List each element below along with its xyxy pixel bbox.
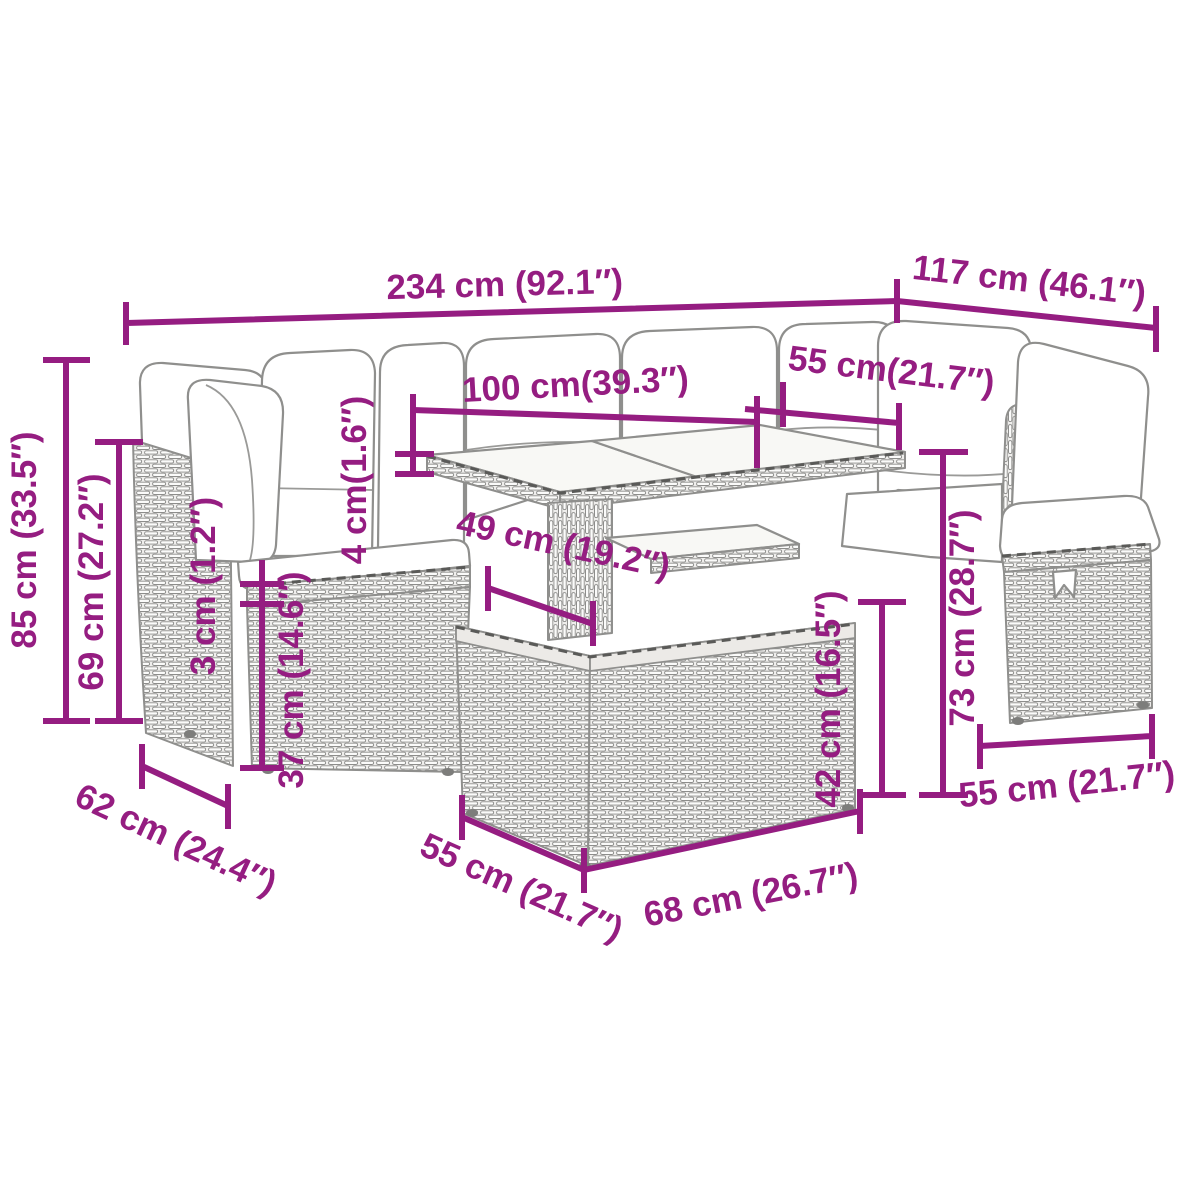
ottoman-foot: [1012, 717, 1024, 725]
sofa-foot: [442, 768, 454, 776]
dimension-label: 85 cm (33.5″): [5, 431, 44, 648]
dimension-line: [858, 602, 906, 795]
dimension-label: 42 cm (16.5″): [809, 590, 848, 807]
dimension-label: 68 cm (26.7″): [640, 855, 861, 935]
ottoman-foot: [1137, 701, 1149, 709]
dimension-label: 3 cm (1.2″): [184, 497, 223, 675]
dim-table-base-height-42: 42 cm (16.5″): [809, 590, 906, 807]
ottoman-front-face: [1004, 560, 1152, 723]
dimension-label: 234 cm (92.1″): [386, 262, 624, 307]
dimension-label: 62 cm (24.4″): [69, 776, 282, 903]
back-cushion-2: [378, 343, 464, 548]
dimension-label: 37 cm (14.6″): [272, 571, 311, 788]
dimension-label: 73 cm (28.7″): [943, 509, 982, 726]
dim-ottoman-width-55: 55 cm (21.7″): [957, 714, 1177, 815]
dimension-label: 55 cm (21.7″): [957, 754, 1177, 815]
sofa-foot: [184, 730, 196, 738]
diagram-canvas: 234 cm (92.1″) 117 cm (46.1″) 85 cm (33.…: [0, 0, 1200, 1200]
dimension-label: 69 cm (27.2″): [72, 473, 111, 690]
dimension-label: 4 cm(1.6″): [335, 396, 374, 565]
table-foot: [466, 809, 478, 817]
dim-total-width-234: 234 cm (92.1″): [126, 262, 897, 345]
dim-backrest-height-69: 69 cm (27.2″): [72, 442, 143, 721]
dimension-diagram: 234 cm (92.1″) 117 cm (46.1″) 85 cm (33.…: [0, 0, 1200, 1200]
